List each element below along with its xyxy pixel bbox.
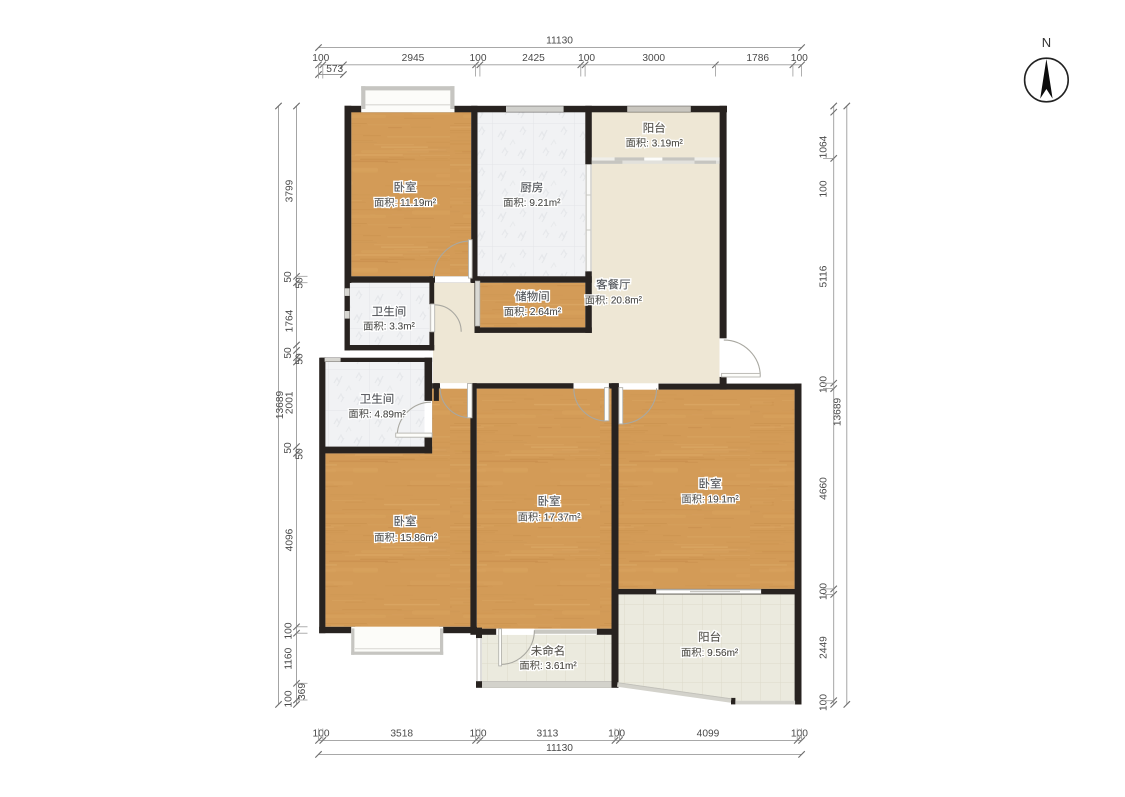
svg-text:100: 100 <box>470 728 487 739</box>
svg-text:100: 100 <box>284 622 295 639</box>
svg-text:100: 100 <box>313 728 330 739</box>
svg-text:2001: 2001 <box>285 391 296 414</box>
svg-text:13689: 13689 <box>833 398 844 427</box>
svg-text:100: 100 <box>608 728 625 739</box>
svg-text:2449: 2449 <box>819 636 830 659</box>
svg-text:573: 573 <box>326 64 343 75</box>
svg-text:: 4.89m²: : 4.89m² <box>369 409 406 420</box>
svg-text:2945: 2945 <box>402 53 425 64</box>
svg-text:: 3.61m²: : 3.61m² <box>540 661 577 672</box>
svg-text:100: 100 <box>819 583 830 600</box>
svg-text:100: 100 <box>791 728 808 739</box>
svg-text:100: 100 <box>791 53 808 64</box>
svg-text:: 2.64m²: : 2.64m² <box>524 307 561 318</box>
svg-text:100: 100 <box>470 53 487 64</box>
svg-text:3000: 3000 <box>642 53 665 64</box>
svg-text:N: N <box>1042 35 1051 50</box>
svg-text:50: 50 <box>283 271 294 283</box>
svg-text:: 3.3m²: : 3.3m² <box>384 322 416 333</box>
svg-text:100: 100 <box>819 376 830 393</box>
svg-text:50: 50 <box>283 347 294 359</box>
svg-text:3799: 3799 <box>285 179 296 202</box>
svg-text:1786: 1786 <box>746 53 769 64</box>
svg-text:50: 50 <box>283 442 294 454</box>
svg-text:1160: 1160 <box>284 647 295 669</box>
svg-text:: 19.1m²: : 19.1m² <box>702 495 739 506</box>
svg-text:3518: 3518 <box>390 728 413 739</box>
svg-text:50: 50 <box>295 448 306 460</box>
svg-text:100: 100 <box>819 694 830 711</box>
svg-text:100: 100 <box>284 690 295 707</box>
svg-text:: 9.21m²: : 9.21m² <box>524 198 561 209</box>
svg-text:1764: 1764 <box>285 309 296 332</box>
svg-text:1064: 1064 <box>819 135 830 158</box>
svg-text:369: 369 <box>297 683 308 700</box>
svg-text:50: 50 <box>295 353 306 365</box>
svg-text:5116: 5116 <box>819 265 830 287</box>
svg-text:: 15.86m²: : 15.86m² <box>395 533 438 544</box>
svg-text:: 17.37m²: : 17.37m² <box>538 513 581 524</box>
svg-text:11130: 11130 <box>546 36 573 47</box>
svg-text:: 9.56m²: : 9.56m² <box>702 648 739 659</box>
svg-text:100: 100 <box>578 53 595 64</box>
svg-text:4660: 4660 <box>819 477 830 500</box>
svg-text:100: 100 <box>819 180 830 197</box>
svg-text:: 11.19m²: : 11.19m² <box>395 198 437 209</box>
svg-text:100: 100 <box>312 53 329 64</box>
svg-text:: 3.19m²: : 3.19m² <box>646 138 683 149</box>
svg-text:2425: 2425 <box>522 53 545 64</box>
svg-text:4099: 4099 <box>697 728 720 739</box>
svg-text:4096: 4096 <box>285 528 296 551</box>
svg-text:3113: 3113 <box>536 728 558 739</box>
svg-text:11130: 11130 <box>546 743 573 754</box>
svg-text:: 20.8m²: : 20.8m² <box>605 296 642 307</box>
